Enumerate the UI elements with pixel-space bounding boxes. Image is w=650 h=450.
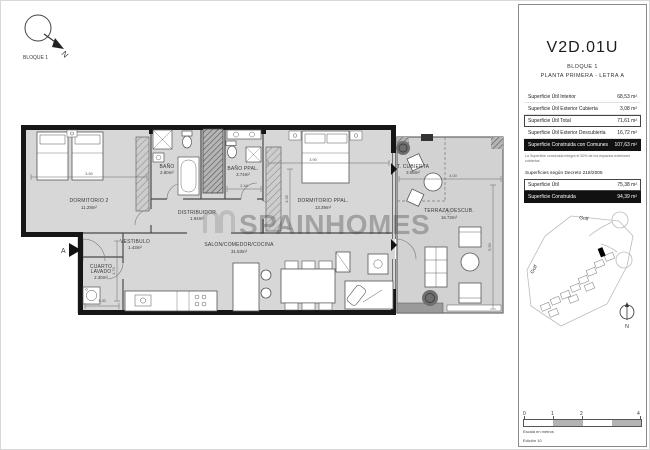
surface-footnote: La Superficie construida integra el 50% … bbox=[525, 154, 640, 163]
scale-caption: Escala en metros bbox=[523, 429, 642, 434]
room-label-dormitorio2: DORMITORIO 2 bbox=[70, 198, 109, 204]
title-block-panel: V2D.01U BLOQUE 1 PLANTA PRIMERA - LETRA … bbox=[518, 4, 647, 447]
block-label: BLOQUE 1 bbox=[519, 64, 646, 70]
unit-code: V2D.01U bbox=[519, 39, 646, 57]
surface-table: Superficie Útil Interior68,53 m² Superfi… bbox=[524, 91, 641, 151]
north-compass-icon: N bbox=[25, 15, 70, 60]
svg-text:2.80m²: 2.80m² bbox=[160, 170, 174, 175]
decree-title: Superficies según Decreto 218/2005 bbox=[525, 171, 640, 178]
room-label-bano-ppal: BAÑO PPAL. bbox=[227, 165, 258, 172]
dim-label: 3.90 bbox=[309, 157, 317, 162]
decree-table: Superficie Útil75,38 m² Superficie Const… bbox=[524, 179, 641, 203]
decree-row-util: Superficie Útil75,38 m² bbox=[524, 179, 641, 191]
room-label-salon: SALON/COMEDOR/COCINA bbox=[204, 242, 274, 248]
compass-block-label: BLOQUE 1 bbox=[23, 55, 48, 61]
edition-label: Edición 10 bbox=[523, 438, 542, 443]
dim-label: 3.50 bbox=[85, 171, 93, 176]
room-label-dormitorio-ppal: DORMITORIO PPAL. bbox=[298, 198, 349, 204]
watermark: SPAINHOMES ® bbox=[205, 207, 452, 240]
svg-text:11.28m²: 11.28m² bbox=[81, 205, 97, 210]
golf-label-left: Golf bbox=[529, 264, 539, 275]
shaft-hatch bbox=[203, 129, 223, 193]
svg-text:31.53m²: 31.53m² bbox=[231, 249, 248, 254]
floor-plan: N BLOQUE 1 bbox=[1, 1, 516, 450]
svg-text:1.94m²: 1.94m² bbox=[190, 216, 204, 221]
floor-label: PLANTA PRIMERA - LETRA A bbox=[519, 73, 646, 79]
scale-bar-segments bbox=[523, 419, 642, 427]
svg-text:1.43m²: 1.43m² bbox=[128, 245, 142, 250]
svg-text:N: N bbox=[625, 324, 629, 330]
svg-text:N: N bbox=[60, 49, 71, 59]
dim-label: 4.00 bbox=[449, 173, 457, 178]
room-label-bano: BAÑO bbox=[160, 163, 175, 170]
svg-text:3.74m²: 3.74m² bbox=[236, 172, 250, 177]
surface-row: Superficie Útil Interior68,53 m² bbox=[524, 91, 641, 103]
surface-row: Superficie Útil Exterior Cubierta3,08 m² bbox=[524, 103, 641, 115]
drawing-sheet: N BLOQUE 1 bbox=[0, 0, 650, 450]
svg-text:2.30m²: 2.30m² bbox=[94, 275, 108, 280]
entrance-label: A bbox=[61, 248, 66, 255]
golf-label-top: Golf bbox=[579, 215, 590, 223]
decree-row-construida: Superficie Construida94,39 m² bbox=[524, 191, 641, 203]
dim-label: 3.35 bbox=[284, 195, 289, 203]
watermark-reg-icon: ® bbox=[445, 207, 452, 217]
surface-row: Superficie Útil Exterior Descubierta16,7… bbox=[524, 127, 641, 139]
scale-bar: 0 1 2 4 Escala en metros bbox=[523, 411, 642, 434]
dim-label: 1.30 bbox=[98, 298, 106, 303]
highlighted-building bbox=[598, 248, 606, 258]
watermark-text: SPAINHOMES bbox=[239, 209, 430, 240]
svg-text:3.08m²: 3.08m² bbox=[406, 170, 420, 175]
site-plan: Golf Golf N bbox=[521, 208, 644, 338]
building-cluster bbox=[540, 253, 615, 318]
surface-row-constructed: Superficie Construida con Comunes107,63 … bbox=[524, 139, 641, 151]
siteplan-compass-icon: N bbox=[620, 302, 634, 330]
surface-row-total: Superficie Útil Total71,61 m² bbox=[524, 115, 641, 127]
dim-label: 2.44 bbox=[240, 183, 248, 188]
dim-label: 5.50 bbox=[487, 242, 492, 250]
